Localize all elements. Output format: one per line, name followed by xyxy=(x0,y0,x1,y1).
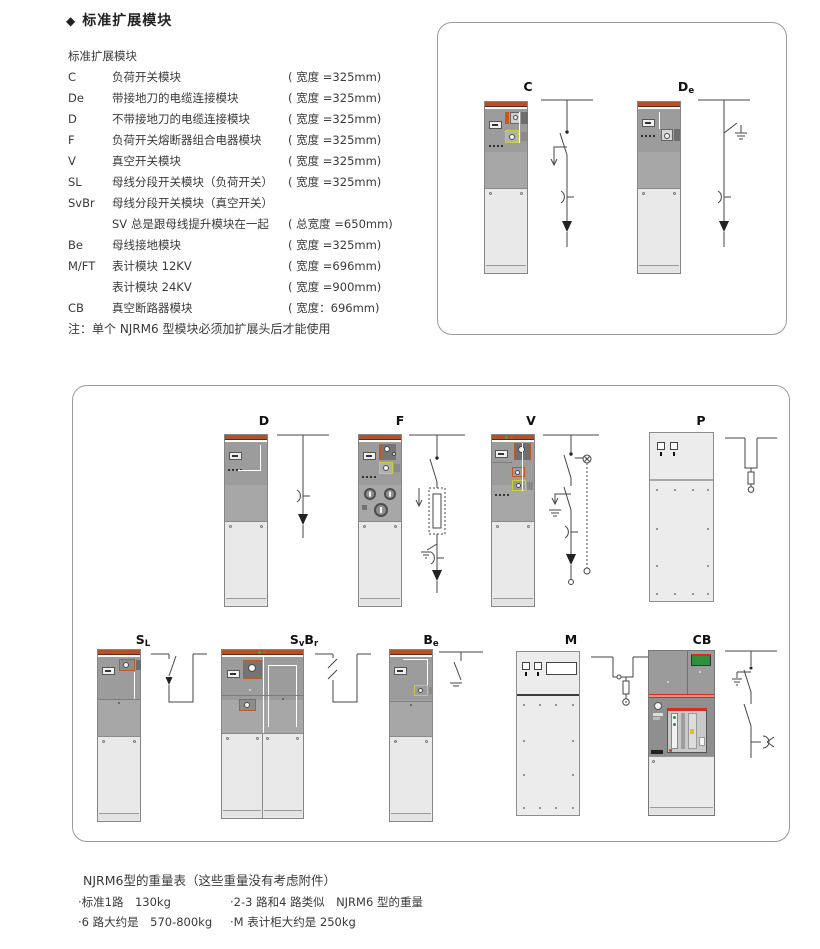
module-width: ( 宽度：696mm) xyxy=(288,298,408,319)
module-code: De xyxy=(68,88,112,109)
orange-indicator xyxy=(510,436,513,439)
indicator-dots xyxy=(495,494,497,496)
module-code: Be xyxy=(68,235,112,256)
module-width: ( 宽度 =325mm) xyxy=(288,151,408,172)
knob xyxy=(374,503,388,517)
label-plate xyxy=(394,667,407,675)
device-box xyxy=(674,129,680,141)
door-panel xyxy=(649,756,714,815)
circuit-symbol-f xyxy=(405,430,469,598)
device-box xyxy=(119,659,135,671)
module-width: ( 宽度 =325mm) xyxy=(288,67,408,88)
module-desc: 带接地刀的电缆连接模块 xyxy=(112,88,288,109)
weight-item: ·标准1路 130kg xyxy=(78,892,230,912)
device-box xyxy=(243,660,262,679)
weight-table-heading: NJRM6型的重量表（这些重量没有考虑附件） xyxy=(83,870,578,892)
module-row: M/FT表计模块 12KV( 宽度 =696mm) xyxy=(68,256,408,277)
module-width: ( 宽度 =325mm) xyxy=(288,109,408,130)
circuit-symbol-svbr xyxy=(313,646,373,714)
weight-item: ·6 路大约是 570-800kg xyxy=(78,912,230,932)
label-plate xyxy=(642,119,655,127)
indicator-dots xyxy=(228,469,230,471)
indicator-dots xyxy=(489,145,491,147)
module-desc: 真空断路器模块 xyxy=(112,298,288,319)
breaker-truck xyxy=(667,708,707,753)
module-label-de: De xyxy=(666,79,706,96)
bottom-plate xyxy=(223,810,261,817)
module-desc: 母线接地模块 xyxy=(112,235,288,256)
label-plate xyxy=(489,121,502,129)
bottom-plate xyxy=(391,813,431,820)
cabinet-f xyxy=(358,434,402,607)
module-width: ( 宽度 =696mm) xyxy=(288,256,408,277)
module-desc: 表计模块 12KV xyxy=(112,256,288,277)
module-width: ( 宽度 =325mm) xyxy=(288,235,408,256)
cabinet-sl xyxy=(97,649,141,822)
weight-item: ·2-3 路和4 路类似 NJRM6 型的重量 xyxy=(230,892,423,912)
module-code: SvBr xyxy=(68,193,112,214)
label-plate xyxy=(227,670,240,678)
module-label-d: D xyxy=(249,413,279,428)
module-label-f: F xyxy=(385,413,415,428)
module-row: F负荷开关熔断器组合电器模块( 宽度 =325mm) xyxy=(68,130,408,151)
orange-indicator xyxy=(263,651,266,654)
device-box xyxy=(505,112,509,124)
indicator-dots xyxy=(362,476,364,478)
breaker-compartment xyxy=(649,698,714,756)
module-code xyxy=(68,214,112,235)
circuit-symbol-sl xyxy=(149,646,209,714)
circuit-symbol-cb xyxy=(723,646,779,768)
module-code: V xyxy=(68,151,112,172)
top-panel xyxy=(650,433,713,481)
module-desc: SV 总是跟母线提升模块在一起 xyxy=(112,214,288,235)
module-desc: 负荷开关模块 xyxy=(112,67,288,88)
red-indicator xyxy=(669,749,672,752)
catalog-page: ◆标准扩展模块 标准扩展模块 C负荷开关模块( 宽度 =325mm) De带接地… xyxy=(0,0,820,949)
device-box xyxy=(512,480,526,491)
module-list: 标准扩展模块 C负荷开关模块( 宽度 =325mm) De带接地刀的电缆连接模块… xyxy=(68,46,408,319)
main-diagram-box: D F xyxy=(72,385,790,842)
module-desc: 母线分段开关模块（真空开关） xyxy=(112,193,288,214)
module-width: ( 宽度 =325mm) xyxy=(288,172,408,193)
page-title-text: 标准扩展模块 xyxy=(82,13,172,29)
bottom-plate xyxy=(99,813,139,820)
device-box xyxy=(414,685,428,696)
cabinet-v xyxy=(491,434,535,607)
cabinet-m xyxy=(516,651,580,816)
green-indicator xyxy=(505,436,508,439)
door-panel xyxy=(390,736,432,821)
module-code: SL xyxy=(68,172,112,193)
meter-window xyxy=(546,662,577,675)
door-panel xyxy=(98,736,140,821)
circuit-symbol-m xyxy=(589,647,655,719)
knob xyxy=(364,488,376,500)
device-box xyxy=(429,687,433,694)
cabinet-svbr xyxy=(221,649,304,819)
device-box xyxy=(512,467,525,477)
module-desc: 负荷开关熔断器组合电器模块 xyxy=(112,130,288,151)
door-panel xyxy=(485,188,527,273)
panel-button xyxy=(670,442,678,450)
weight-row: ·标准1路 130kg ·2-3 路和4 路类似 NJRM6 型的重量 xyxy=(78,892,578,912)
page-title: ◆标准扩展模块 xyxy=(66,10,172,30)
device-box xyxy=(394,464,400,472)
module-row: C负荷开关模块( 宽度 =325mm) xyxy=(68,67,408,88)
module-row: SV 总是跟母线提升模块在一起( 总宽度 =650mm) xyxy=(68,214,408,235)
door-panel xyxy=(359,521,401,606)
cabinet-cb xyxy=(648,650,715,816)
label-plate xyxy=(102,667,115,675)
label-plate xyxy=(229,452,242,460)
circuit-symbol-d xyxy=(273,430,333,542)
module-desc: 母线分段开关模块（负荷开关） xyxy=(112,172,288,193)
circuit-symbol-p xyxy=(723,432,779,494)
device-box xyxy=(136,660,141,670)
top-panel xyxy=(649,651,714,694)
label-plate xyxy=(495,450,508,458)
module-label-v: V xyxy=(516,413,546,428)
bottom-plate xyxy=(264,810,302,817)
panel-button xyxy=(534,662,542,670)
cabinet-p xyxy=(649,432,714,602)
cabinet-de xyxy=(637,101,681,274)
protection-relay-screen xyxy=(691,654,711,666)
cabinet-c xyxy=(484,101,528,274)
door-panel xyxy=(492,521,534,606)
knob xyxy=(384,488,396,500)
module-code: CB xyxy=(68,298,112,319)
device-box xyxy=(505,130,519,143)
module-list-heading: 标准扩展模块 xyxy=(68,46,408,67)
module-label-cb: CB xyxy=(683,632,721,647)
module-row: SvBr母线分段开关模块（真空开关） xyxy=(68,193,408,214)
module-row: Be母线接地模块( 宽度 =325mm) xyxy=(68,235,408,256)
top-diagram-box: C xyxy=(437,22,787,335)
device-box xyxy=(521,132,527,141)
bottom-plate xyxy=(360,598,400,605)
module-row: D不带接地刀的电缆连接模块( 宽度 =325mm) xyxy=(68,109,408,130)
module-width: ( 宽度 =900mm) xyxy=(288,277,408,298)
bottom-plate xyxy=(486,265,526,272)
module-row: 表计模块 24KV( 宽度 =900mm) xyxy=(68,277,408,298)
module-row: CB真空断路器模块( 宽度：696mm) xyxy=(68,298,408,319)
module-width: ( 宽度 =325mm) xyxy=(288,130,408,151)
bottom-plate xyxy=(493,598,533,605)
module-desc: 表计模块 24KV xyxy=(112,277,288,298)
module-desc: 真空开关模块 xyxy=(112,151,288,172)
green-indicator xyxy=(673,723,676,726)
module-row: De带接地刀的电缆连接模块( 宽度 =325mm) xyxy=(68,88,408,109)
door-panel xyxy=(225,521,267,606)
weight-item: ·M 表计柜大约是 250kg xyxy=(230,912,356,932)
panel-button xyxy=(657,442,665,450)
bottom-plate xyxy=(650,807,713,814)
module-row: SL母线分段开关模块（负荷开关）( 宽度 =325mm) xyxy=(68,172,408,193)
device-box xyxy=(527,482,533,490)
module-code: C xyxy=(68,67,112,88)
bottom-plate xyxy=(639,265,679,272)
circuit-symbol-v xyxy=(539,430,603,602)
module-label-p: P xyxy=(686,413,716,428)
gauge-dial xyxy=(654,702,662,710)
green-indicator xyxy=(258,651,261,654)
module-code: D xyxy=(68,109,112,130)
panel-button xyxy=(522,662,530,670)
circuit-symbol-de xyxy=(694,95,754,265)
device-box xyxy=(661,129,673,141)
weight-row: ·6 路大约是 570-800kg ·M 表计柜大约是 250kg xyxy=(78,912,578,932)
module-desc: 不带接地刀的电缆连接模块 xyxy=(112,109,288,130)
module-width: ( 宽度 =325mm) xyxy=(288,88,408,109)
module-label-c: C xyxy=(513,79,543,96)
bottom-plate xyxy=(226,598,266,605)
module-code: M/FT xyxy=(68,256,112,277)
module-code: F xyxy=(68,130,112,151)
module-code xyxy=(68,277,112,298)
green-indicator xyxy=(673,716,676,719)
device-box xyxy=(379,444,396,460)
circuit-symbol-be xyxy=(437,646,487,704)
module-width xyxy=(288,193,408,214)
module-list-note: 注：单个 NJRM6 型模块必须加扩展头后才能使用 xyxy=(68,320,330,337)
circuit-symbol-c xyxy=(537,95,597,265)
cabinet-be xyxy=(389,649,433,822)
module-label-m: M xyxy=(556,632,586,647)
diamond-icon: ◆ xyxy=(66,14,76,28)
yellow-tag xyxy=(690,729,694,734)
top-panel xyxy=(517,652,579,696)
device-box xyxy=(239,699,256,711)
door-panel xyxy=(222,733,303,818)
device-box xyxy=(521,112,528,124)
label-plate xyxy=(363,452,376,460)
module-width: ( 总宽度 =650mm) xyxy=(288,214,408,235)
module-row: V真空开关模块( 宽度 =325mm) xyxy=(68,151,408,172)
indicator-dots xyxy=(641,135,643,137)
cabinet-d xyxy=(224,434,268,607)
device-box xyxy=(362,505,367,510)
door-panel xyxy=(638,188,680,273)
weight-table: NJRM6型的重量表（这些重量没有考虑附件） ·标准1路 130kg ·2-3 … xyxy=(78,870,578,932)
device-box xyxy=(379,462,393,474)
